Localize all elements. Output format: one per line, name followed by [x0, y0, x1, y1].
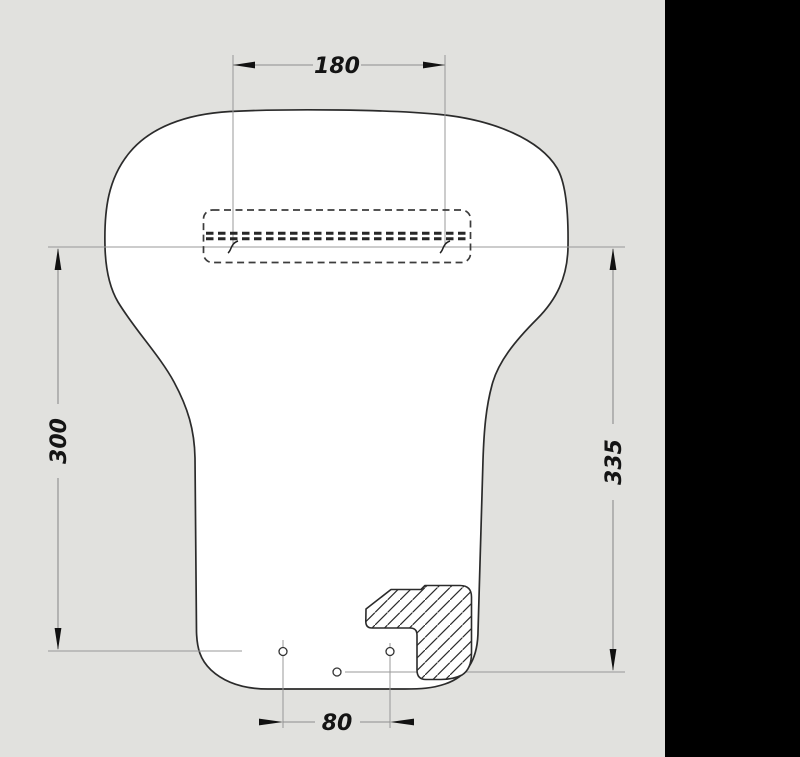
mounting-hole-center: [333, 668, 341, 676]
dimension-label-335: 335: [602, 439, 627, 485]
mounting-hole-left: [279, 648, 287, 656]
dimension-label-180: 180: [314, 54, 360, 79]
mounting-hole-right: [386, 648, 394, 656]
side-strip: [665, 0, 800, 757]
technical-drawing: 180 300 335 80: [0, 0, 800, 757]
drawing-canvas: 180 300 335 80: [0, 0, 800, 757]
dimension-label-300: 300: [47, 418, 72, 464]
dimension-label-80: 80: [322, 711, 353, 736]
